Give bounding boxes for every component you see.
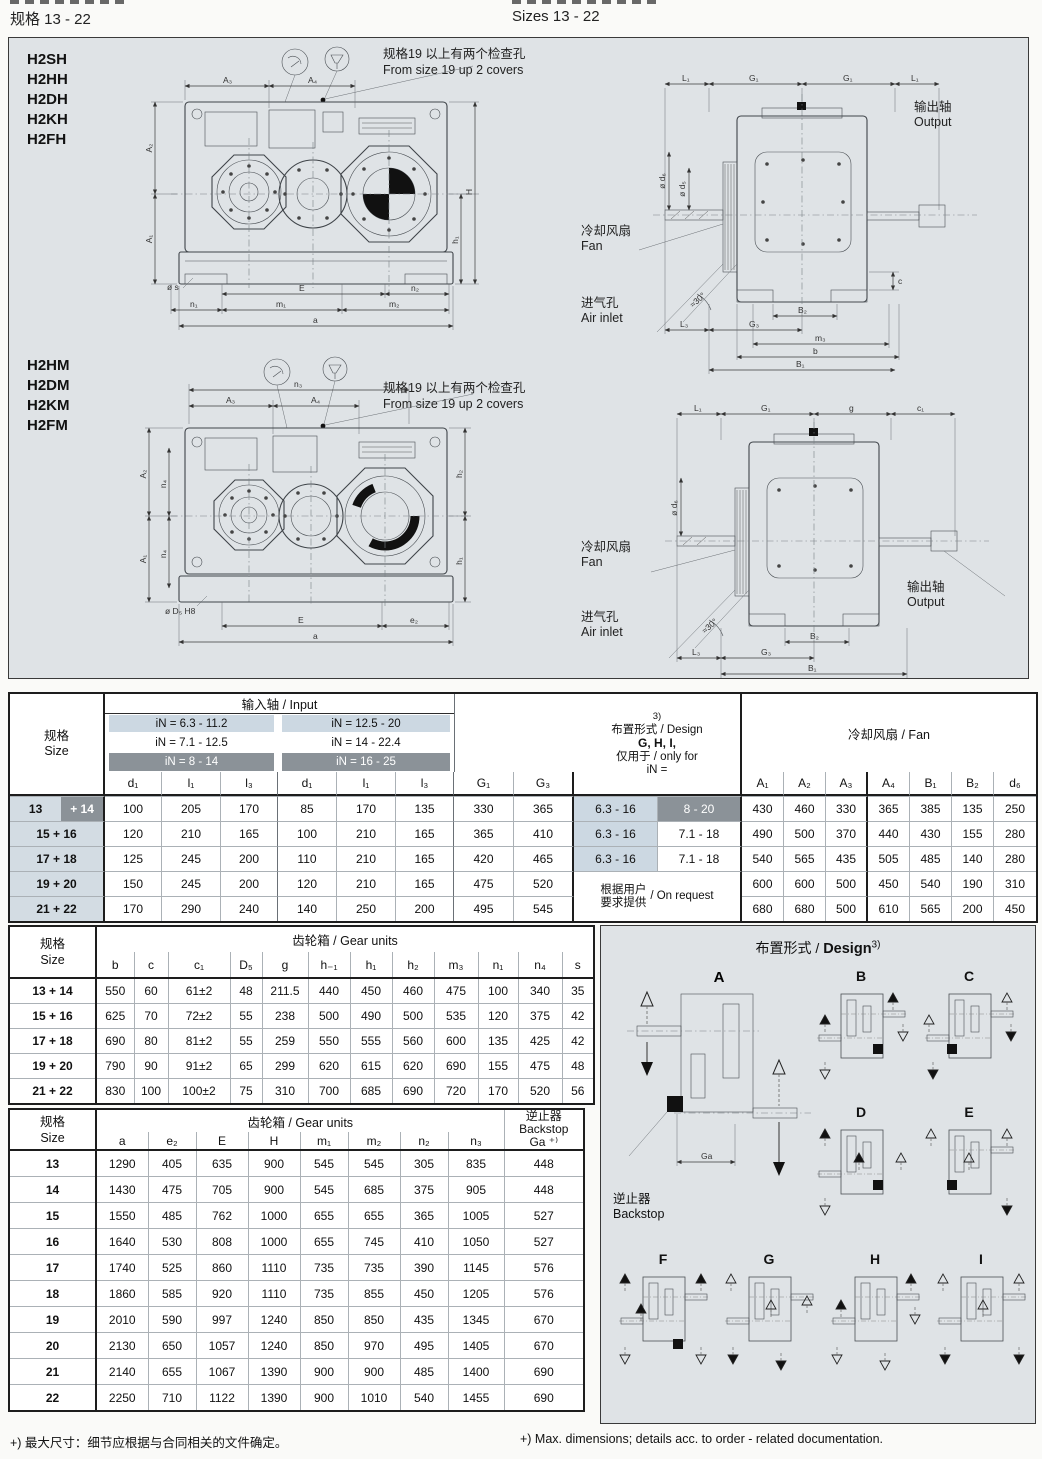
col-l3: l₃ bbox=[221, 772, 278, 796]
ratio-band-3b: iN = 16 - 25 bbox=[278, 752, 454, 772]
table-cell: 238 bbox=[262, 1004, 308, 1029]
dim-n2: n₂ bbox=[411, 283, 419, 293]
table-row: 16164053080810006557454101050527 bbox=[9, 1229, 584, 1255]
backstop-cn: 逆止器 bbox=[613, 1192, 664, 1207]
footnote-marker: 3) bbox=[653, 710, 661, 724]
col-c: c bbox=[134, 952, 168, 978]
table-cell: 475 bbox=[518, 1054, 562, 1079]
dim-a: a bbox=[313, 315, 318, 325]
design-letter-d: D bbox=[811, 1104, 911, 1120]
table-cell: 735 bbox=[300, 1255, 348, 1281]
table-cell: 1145 bbox=[448, 1255, 504, 1281]
dim-l1: L₁ bbox=[694, 403, 702, 413]
dim-n3: n₃ bbox=[294, 379, 302, 389]
design-header-line4: iN = bbox=[647, 764, 668, 778]
dim-n1: n₁ bbox=[190, 299, 198, 309]
table-cell: 430 bbox=[910, 821, 952, 846]
table-cell: 475 bbox=[434, 978, 478, 1004]
dim-l1: L₁ bbox=[682, 73, 690, 83]
table-cell: 210 bbox=[337, 821, 396, 846]
table-cell: 540 bbox=[910, 871, 952, 896]
design-a-diagram: A Ga bbox=[619, 966, 819, 1186]
backstop-cell: 670 bbox=[504, 1307, 584, 1333]
table-cell: 7.1 - 18 bbox=[658, 846, 742, 871]
table-cell: 540 bbox=[742, 846, 784, 871]
table-cell: 565 bbox=[910, 896, 952, 921]
table-cell: 165 bbox=[396, 846, 454, 871]
design-e-diagram: E bbox=[919, 1104, 1019, 1229]
size-cell: 15 bbox=[9, 1203, 96, 1229]
table-cell: 900 bbox=[300, 1359, 348, 1385]
size-cell: 20 bbox=[9, 1333, 96, 1359]
table-cell: 850 bbox=[300, 1307, 348, 1333]
table-cell: 1430 bbox=[96, 1177, 148, 1203]
table-cell: 250 bbox=[994, 796, 1036, 821]
col-n1: n₁ bbox=[478, 952, 518, 978]
table-cell: 705 bbox=[196, 1177, 248, 1203]
table-cell: 485 bbox=[910, 846, 952, 871]
design-letter-h: H bbox=[825, 1251, 925, 1267]
table-cell: 545 bbox=[300, 1177, 348, 1203]
design-panel-title: 布置形式 / Design3) bbox=[601, 938, 1035, 958]
table-cell: 555 bbox=[350, 1029, 392, 1054]
cropped-text-fragment bbox=[512, 0, 662, 4]
col-b1: B₁ bbox=[910, 772, 952, 796]
table-cell: 385 bbox=[910, 796, 952, 821]
table-cell: 7.1 - 18 bbox=[658, 821, 742, 846]
table-cell: 6.3 - 16 bbox=[574, 821, 658, 846]
table-cell: 140 bbox=[278, 896, 337, 921]
table-cell: 635 bbox=[196, 1150, 248, 1177]
table-row: 21 + 22830100100±27531070068569072017052… bbox=[9, 1079, 594, 1105]
table-cell: 1050 bbox=[448, 1229, 504, 1255]
table-cell: 42 bbox=[562, 1004, 594, 1029]
design-header-line1: 布置形式 / Design bbox=[611, 724, 702, 738]
table-cell: 125 bbox=[105, 846, 162, 871]
gear-units-table-1: 规格 Size 齿轮箱 / Gear units b c c₁ D₅ g h₋₁… bbox=[8, 925, 595, 1105]
dim-b2: B₂ bbox=[798, 305, 807, 315]
design-letter-a: A bbox=[714, 969, 725, 986]
table-cell: 600 bbox=[434, 1029, 478, 1054]
dim-n4b: n₄ bbox=[158, 549, 168, 558]
size-header-cn: 规格 bbox=[44, 729, 69, 744]
table-cell: 680 bbox=[742, 896, 784, 921]
table-cell: 210 bbox=[337, 871, 396, 896]
output-cn: 输出轴 bbox=[907, 580, 945, 595]
table-cell: 550 bbox=[308, 1029, 350, 1054]
backstop-cn: 逆止器 bbox=[526, 1109, 562, 1123]
table-cell: 100 bbox=[478, 978, 518, 1004]
col-g: g bbox=[262, 952, 308, 978]
table-cell: 1010 bbox=[348, 1385, 400, 1412]
table-cell: 490 bbox=[350, 1004, 392, 1029]
table-cell: 600 bbox=[784, 871, 826, 896]
g-columns-gap bbox=[454, 694, 574, 772]
output-cn: 输出轴 bbox=[914, 100, 952, 115]
table-cell: 80 bbox=[134, 1029, 168, 1054]
table-cell: 75 bbox=[230, 1079, 262, 1105]
table-cell: 210 bbox=[337, 846, 396, 871]
table-cell: 1005 bbox=[448, 1203, 504, 1229]
table-cell: 485 bbox=[148, 1203, 196, 1229]
table-cell: 1860 bbox=[96, 1281, 148, 1307]
table-cell: 410 bbox=[400, 1229, 448, 1255]
size-cell: 16 bbox=[9, 1229, 96, 1255]
backstop-cell: 576 bbox=[504, 1255, 584, 1281]
col-d1b: d₁ bbox=[278, 772, 337, 796]
table-cell: 405 bbox=[148, 1150, 196, 1177]
table-cell: 420 bbox=[454, 846, 514, 871]
backstop-cell: 690 bbox=[504, 1359, 584, 1385]
table-cell: 1640 bbox=[96, 1229, 148, 1255]
table-cell: 855 bbox=[348, 1281, 400, 1307]
table-cell: 310 bbox=[262, 1079, 308, 1105]
dim-h2: h₂ bbox=[454, 470, 464, 478]
table-cell: 550 bbox=[96, 978, 134, 1004]
model-h2kh: H2KH bbox=[27, 110, 68, 130]
ratio-band-3a: iN = 8 - 14 bbox=[105, 752, 278, 772]
table-cell: 485 bbox=[400, 1359, 448, 1385]
size-cn: 规格 bbox=[40, 937, 65, 951]
size-header-en: Size bbox=[44, 744, 68, 759]
model-list-bottom: H2HM H2DM H2KM H2FM bbox=[27, 356, 70, 436]
table-cell: 1067 bbox=[196, 1359, 248, 1385]
air-en: Air inlet bbox=[581, 625, 623, 640]
col-d5: D₅ bbox=[230, 952, 262, 978]
size-cell: 21 bbox=[9, 1359, 96, 1385]
title-cn: 布置形式 / bbox=[756, 940, 820, 956]
table-cell: 625 bbox=[96, 1004, 134, 1029]
table-row: 141430475705900545685375905448 bbox=[9, 1177, 584, 1203]
footnote-cn: +) 最大尺寸：细节应根据与合同相关的文件确定。 bbox=[10, 1432, 287, 1451]
table-cell: 900 bbox=[300, 1385, 348, 1412]
table-cell: 505 bbox=[868, 846, 910, 871]
table-cell: 440 bbox=[308, 978, 350, 1004]
ratio-band-text: iN = 16 - 25 bbox=[282, 753, 450, 771]
col-d6: d₆ bbox=[994, 772, 1036, 796]
design-arrangement-panel: 布置形式 / Design3) A Ga 逆止器 Backstop B C D … bbox=[600, 925, 1036, 1424]
table-cell: 1390 bbox=[248, 1359, 300, 1385]
table-cell: 100±2 bbox=[168, 1079, 230, 1105]
table-cell: 165 bbox=[396, 871, 454, 896]
table-cell: 2250 bbox=[96, 1385, 148, 1412]
design-mini-drawing bbox=[811, 968, 911, 1093]
size-header: 规格 Size bbox=[9, 1109, 96, 1150]
size-cell: 13+ 14 bbox=[10, 796, 105, 821]
table-cell: 1455 bbox=[448, 1385, 504, 1412]
table-cell: 305 bbox=[400, 1150, 448, 1177]
table-cell: 475 bbox=[148, 1177, 196, 1203]
table-cell: 590 bbox=[148, 1307, 196, 1333]
air-en: Air inlet bbox=[581, 311, 623, 326]
table-cell: 1122 bbox=[196, 1385, 248, 1412]
table-cell: 100 bbox=[105, 796, 162, 821]
table-cell: 1057 bbox=[196, 1333, 248, 1359]
table-cell: 685 bbox=[350, 1079, 392, 1105]
table-cell: 615 bbox=[350, 1054, 392, 1079]
table-cell: 690 bbox=[434, 1054, 478, 1079]
dim-g3: G₃ bbox=[749, 319, 759, 329]
ratio-band-1b: iN = 12.5 - 20 bbox=[278, 714, 454, 733]
dim-h1: h₁ bbox=[454, 557, 464, 565]
model-h2fm: H2FM bbox=[27, 416, 70, 436]
table-cell: 280 bbox=[994, 846, 1036, 871]
table-cell: 200 bbox=[221, 846, 278, 871]
backstop-cell: 670 bbox=[504, 1333, 584, 1359]
dim-a2: A₂ bbox=[138, 470, 148, 479]
table-cell: 240 bbox=[221, 896, 278, 921]
air-cn: 进气孔 bbox=[581, 296, 623, 311]
table-cell: 520 bbox=[514, 871, 574, 896]
dim-b1: B₁ bbox=[808, 663, 817, 673]
dim-e: E bbox=[298, 615, 304, 625]
fan-en: Fan bbox=[581, 555, 631, 570]
dim-h1: h₁ bbox=[450, 236, 460, 244]
footnote-en: +) Max. dimensions; details acc. to orde… bbox=[520, 1432, 883, 1446]
design-letter-f: F bbox=[613, 1251, 713, 1267]
table-cell: 140 bbox=[952, 846, 994, 871]
table-cell: 170 bbox=[478, 1079, 518, 1105]
design-letter-g: G bbox=[719, 1251, 819, 1267]
table-cell: 135 bbox=[396, 796, 454, 821]
table-cell: 55 bbox=[230, 1004, 262, 1029]
table-cell: 835 bbox=[448, 1150, 504, 1177]
table-cell: 90 bbox=[134, 1054, 168, 1079]
table-cell: 170 bbox=[337, 796, 396, 821]
dim-a4: A₄ bbox=[308, 75, 318, 85]
table-cell: 390 bbox=[400, 1255, 448, 1281]
design-g-diagram: G bbox=[719, 1251, 819, 1376]
design-letter-i: I bbox=[931, 1251, 1031, 1267]
size-cell: 17 bbox=[9, 1255, 96, 1281]
design-letter-b: B bbox=[811, 968, 911, 984]
model-h2sh: H2SH bbox=[27, 50, 68, 70]
size-cell: 14 bbox=[9, 1177, 96, 1203]
table-cell: 1345 bbox=[448, 1307, 504, 1333]
table-cell: 565 bbox=[784, 846, 826, 871]
design-on-request-cell: 根据用户 要求提供/ On request bbox=[574, 871, 742, 921]
design-mini-drawing bbox=[919, 1104, 1019, 1229]
size-cell: 17 + 18 bbox=[9, 1029, 96, 1054]
table-cell: 100 bbox=[134, 1079, 168, 1105]
table-cell: 365 bbox=[400, 1203, 448, 1229]
table-cell: 365 bbox=[514, 796, 574, 821]
table-cell: 490 bbox=[742, 821, 784, 846]
table-cell: 495 bbox=[454, 896, 514, 921]
col-m2: m₂ bbox=[348, 1132, 400, 1150]
table-cell: 900 bbox=[248, 1177, 300, 1203]
fan-cn: 冷却风扇 bbox=[581, 224, 631, 239]
table-cell: 540 bbox=[400, 1385, 448, 1412]
table-cell: 545 bbox=[300, 1150, 348, 1177]
model-h2hh: H2HH bbox=[27, 70, 68, 90]
table-cell: 720 bbox=[434, 1079, 478, 1105]
backstop-cell: 527 bbox=[504, 1203, 584, 1229]
table-cell: 165 bbox=[221, 821, 278, 846]
table-cell: 170 bbox=[105, 896, 162, 921]
table-cell: 500 bbox=[826, 896, 868, 921]
table-cell: 460 bbox=[392, 978, 434, 1004]
table-cell: 42 bbox=[562, 1029, 594, 1054]
table-cell: 85 bbox=[278, 796, 337, 821]
backstop-header: 逆止器 Backstop Ga ⁺⁾ bbox=[504, 1109, 584, 1150]
table-cell: 1000 bbox=[248, 1203, 300, 1229]
dim-l3: L₃ bbox=[680, 319, 688, 329]
design-header-line2: G, H, I, bbox=[638, 737, 676, 751]
col-n4: n₄ bbox=[518, 952, 562, 978]
table-cell: 762 bbox=[196, 1203, 248, 1229]
table-cell: 1110 bbox=[248, 1281, 300, 1307]
col-e2: e₂ bbox=[148, 1132, 196, 1150]
table-cell: 535 bbox=[434, 1004, 478, 1029]
table-cell: 465 bbox=[514, 846, 574, 871]
table-cell: 365 bbox=[868, 796, 910, 821]
table-cell: 1400 bbox=[448, 1359, 504, 1385]
design-mini-drawing bbox=[919, 968, 1019, 1093]
gear-units-group-header: 齿轮箱 / Gear units bbox=[96, 1109, 504, 1132]
table-cell: 1405 bbox=[448, 1333, 504, 1359]
model-h2dh: H2DH bbox=[27, 90, 68, 110]
col-d1: d₁ bbox=[105, 772, 162, 796]
col-g1: G₁ bbox=[454, 772, 514, 796]
table-cell: 450 bbox=[400, 1281, 448, 1307]
table-cell: 210 bbox=[162, 821, 221, 846]
dim-a2: A₂ bbox=[144, 144, 154, 153]
table-cell: 450 bbox=[994, 896, 1036, 921]
size-cell: 18 bbox=[9, 1281, 96, 1307]
dim-c: c bbox=[898, 276, 903, 286]
table-cell: 6.3 - 16 bbox=[574, 846, 658, 871]
table-cell: 970 bbox=[348, 1333, 400, 1359]
dim-c1: c₁ bbox=[917, 403, 924, 413]
table-cell: 91±2 bbox=[168, 1054, 230, 1079]
table-cell: 655 bbox=[300, 1203, 348, 1229]
table-cell: 330 bbox=[454, 796, 514, 821]
design-f-diagram: F bbox=[613, 1251, 713, 1376]
design-letter-e: E bbox=[919, 1104, 1019, 1120]
table-cell: 430 bbox=[742, 796, 784, 821]
backstop-en: Backstop bbox=[519, 1122, 568, 1136]
size-cell: 21 + 22 bbox=[10, 896, 105, 921]
table-cell: 1240 bbox=[248, 1333, 300, 1359]
table-cell: 690 bbox=[392, 1079, 434, 1105]
table-row: 131290405635900545545305835448 bbox=[9, 1150, 584, 1177]
table-cell: 2140 bbox=[96, 1359, 148, 1385]
table-cell: 165 bbox=[396, 821, 454, 846]
table-cell: 8 - 20 bbox=[658, 796, 742, 821]
input-design-fan-table: 规格 Size 输入轴 / Input iN = 6.3 - 11.2 iN =… bbox=[8, 692, 1038, 923]
dim-g3: G₃ bbox=[761, 647, 771, 657]
table-cell: 35 bbox=[562, 978, 594, 1004]
backstop-symbol: Ga ⁺⁾ bbox=[529, 1135, 558, 1149]
table-cell: 280 bbox=[994, 821, 1036, 846]
table-cell: 620 bbox=[392, 1054, 434, 1079]
table-cell: 450 bbox=[350, 978, 392, 1004]
table-cell: 435 bbox=[826, 846, 868, 871]
side-view-top-drawing: L₁ G₁ G₁ L₁ ø d₅ ø d₆ c ≈30° bbox=[637, 64, 1017, 376]
col-a: a bbox=[96, 1132, 148, 1150]
table-cell: 48 bbox=[562, 1054, 594, 1079]
page-subtitle-cn: 规格 13 - 22 bbox=[10, 8, 91, 29]
dim-30: ≈30° bbox=[700, 616, 720, 635]
design-c-diagram: C bbox=[919, 968, 1019, 1093]
size-cell: 19 bbox=[9, 1307, 96, 1333]
design-mini-drawing bbox=[719, 1251, 819, 1376]
model-h2fh: H2FH bbox=[27, 130, 68, 150]
table-cell: 370 bbox=[826, 821, 868, 846]
model-list-top: H2SH H2HH H2DH H2KH H2FH bbox=[27, 50, 68, 150]
table-cell: 690 bbox=[96, 1029, 134, 1054]
table-cell: 150 bbox=[105, 871, 162, 896]
table-cell: 2010 bbox=[96, 1307, 148, 1333]
backstop-cell: 448 bbox=[504, 1150, 584, 1177]
table-cell: 545 bbox=[514, 896, 574, 921]
table-cell: 500 bbox=[392, 1004, 434, 1029]
table-cell: 655 bbox=[148, 1359, 196, 1385]
table-row: 18186058592011107358554501205576 bbox=[9, 1281, 584, 1307]
size-column-header: 规格 Size bbox=[10, 694, 105, 796]
table-cell: 120 bbox=[478, 1004, 518, 1029]
table-cell: 1290 bbox=[96, 1150, 148, 1177]
table-cell: 120 bbox=[278, 871, 337, 896]
table-cell: 1000 bbox=[248, 1229, 300, 1255]
table-cell: 905 bbox=[448, 1177, 504, 1203]
table-cell: 48 bbox=[230, 978, 262, 1004]
size-cell: 17 + 18 bbox=[10, 846, 105, 871]
table-cell: 850 bbox=[348, 1307, 400, 1333]
dim-g1b: G₁ bbox=[843, 73, 853, 83]
table-cell: 475 bbox=[454, 871, 514, 896]
model-h2km: H2KM bbox=[27, 396, 70, 416]
dim-ga: Ga bbox=[701, 1151, 713, 1161]
air-inlet-label-bottom: 进气孔 Air inlet bbox=[581, 610, 623, 640]
size-en: Size bbox=[40, 1131, 64, 1145]
design-mini-drawing bbox=[931, 1251, 1031, 1376]
table-cell: 735 bbox=[348, 1255, 400, 1281]
design-i-diagram: I bbox=[931, 1251, 1031, 1376]
dimension-drawing-panel: H2SH H2HH H2DH H2KH H2FH 规格19 以上有两个检查孔 F… bbox=[8, 37, 1029, 679]
col-c1: c₁ bbox=[168, 952, 230, 978]
ratio-band-2a: iN = 7.1 - 12.5 bbox=[105, 733, 278, 752]
dim-l1b: L₁ bbox=[911, 73, 919, 83]
design-b-diagram: B bbox=[811, 968, 911, 1093]
col-h-1: h₋₁ bbox=[308, 952, 350, 978]
dim-30: ≈30° bbox=[688, 290, 708, 309]
design-header-line3: 仅用于 / only for bbox=[616, 751, 698, 765]
table-cell: 997 bbox=[196, 1307, 248, 1333]
table-cell: 259 bbox=[262, 1029, 308, 1054]
table-cell: 60 bbox=[134, 978, 168, 1004]
table-cell: 900 bbox=[348, 1359, 400, 1385]
backstop-label: 逆止器 Backstop bbox=[613, 1192, 664, 1222]
dim-l3: L₃ bbox=[692, 647, 700, 657]
dim-a3: A₃ bbox=[223, 75, 232, 85]
table-cell: 135 bbox=[952, 796, 994, 821]
output-shaft-label-top: 输出轴 Output bbox=[914, 100, 952, 130]
table-cell: 650 bbox=[148, 1333, 196, 1359]
table-cell: 340 bbox=[518, 978, 562, 1004]
table-cell: 620 bbox=[308, 1054, 350, 1079]
design-mini-drawing bbox=[825, 1251, 925, 1376]
fan-group-header: 冷却风扇 / Fan bbox=[742, 694, 1036, 772]
table-cell: 530 bbox=[148, 1229, 196, 1255]
design-h-diagram: H bbox=[825, 1251, 925, 1376]
backstop-cell: 690 bbox=[504, 1385, 584, 1412]
col-b2: B₂ bbox=[952, 772, 994, 796]
table-row: 202130650105712408509704951405670 bbox=[9, 1333, 584, 1359]
table-cell: 425 bbox=[518, 1029, 562, 1054]
table-cell: 330 bbox=[826, 796, 868, 821]
